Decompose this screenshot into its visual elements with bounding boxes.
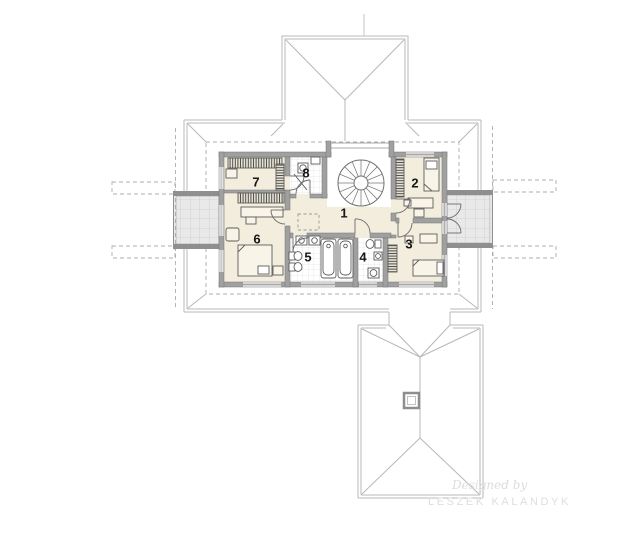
stair-bay-floor — [327, 141, 391, 158]
bathtub — [321, 239, 336, 278]
bidet — [289, 263, 302, 272]
chair — [246, 217, 256, 224]
wardrobe — [276, 164, 284, 190]
window-room6-left — [219, 250, 224, 272]
window-room7-left — [219, 167, 224, 189]
balcony-door-right-room2 — [442, 203, 447, 216]
floorplan-page: Designed by LESZEK KALANDYK — [0, 0, 638, 556]
wardrobe — [396, 159, 404, 197]
washbasin — [374, 252, 382, 260]
gable-roof — [282, 14, 408, 152]
washing-machine — [368, 268, 379, 278]
room-label-3: 3 — [405, 237, 412, 252]
bed — [238, 245, 272, 276]
window-room3-bottom — [399, 282, 434, 287]
room-label-7: 7 — [252, 175, 259, 190]
armchair — [226, 228, 239, 241]
pillow — [437, 262, 443, 274]
window-room4-bottom — [359, 282, 377, 287]
desk — [420, 234, 437, 243]
balcony-door-left — [219, 205, 224, 236]
room-label-5: 5 — [304, 250, 311, 265]
nightstand — [273, 266, 283, 275]
room-label-6: 6 — [253, 232, 260, 247]
pillow — [426, 161, 437, 169]
room-label-8: 8 — [302, 166, 309, 181]
toilet — [289, 252, 302, 261]
desk — [408, 198, 433, 208]
bed — [413, 260, 444, 276]
garage-roof — [358, 312, 483, 498]
dresser — [226, 169, 237, 178]
pillow — [258, 266, 269, 274]
desk — [241, 207, 283, 217]
window-room6-bottom — [243, 282, 281, 287]
wardrobe — [228, 158, 282, 168]
watermark-author: LESZEK KALANDYK — [428, 496, 571, 508]
room-label-4: 4 — [359, 250, 366, 265]
wardrobe — [388, 245, 397, 272]
balcony-left — [173, 191, 219, 249]
window-room2-top — [406, 152, 434, 157]
wardrobe — [238, 193, 284, 203]
bed — [424, 158, 439, 191]
floor-plan-drawing — [0, 0, 638, 556]
chimney — [404, 393, 419, 408]
balcony-right — [447, 190, 493, 248]
wall-niche — [311, 157, 320, 164]
bathtub — [338, 239, 353, 278]
balcony-door-right-room3 — [442, 221, 447, 234]
window-room5-bottom — [301, 282, 335, 287]
room-label-1: 1 — [340, 206, 347, 221]
watermark-designed-by: Designed by — [452, 478, 527, 492]
room-label-2: 2 — [411, 176, 418, 191]
spiral-staircase — [338, 160, 384, 206]
chair — [414, 209, 424, 217]
